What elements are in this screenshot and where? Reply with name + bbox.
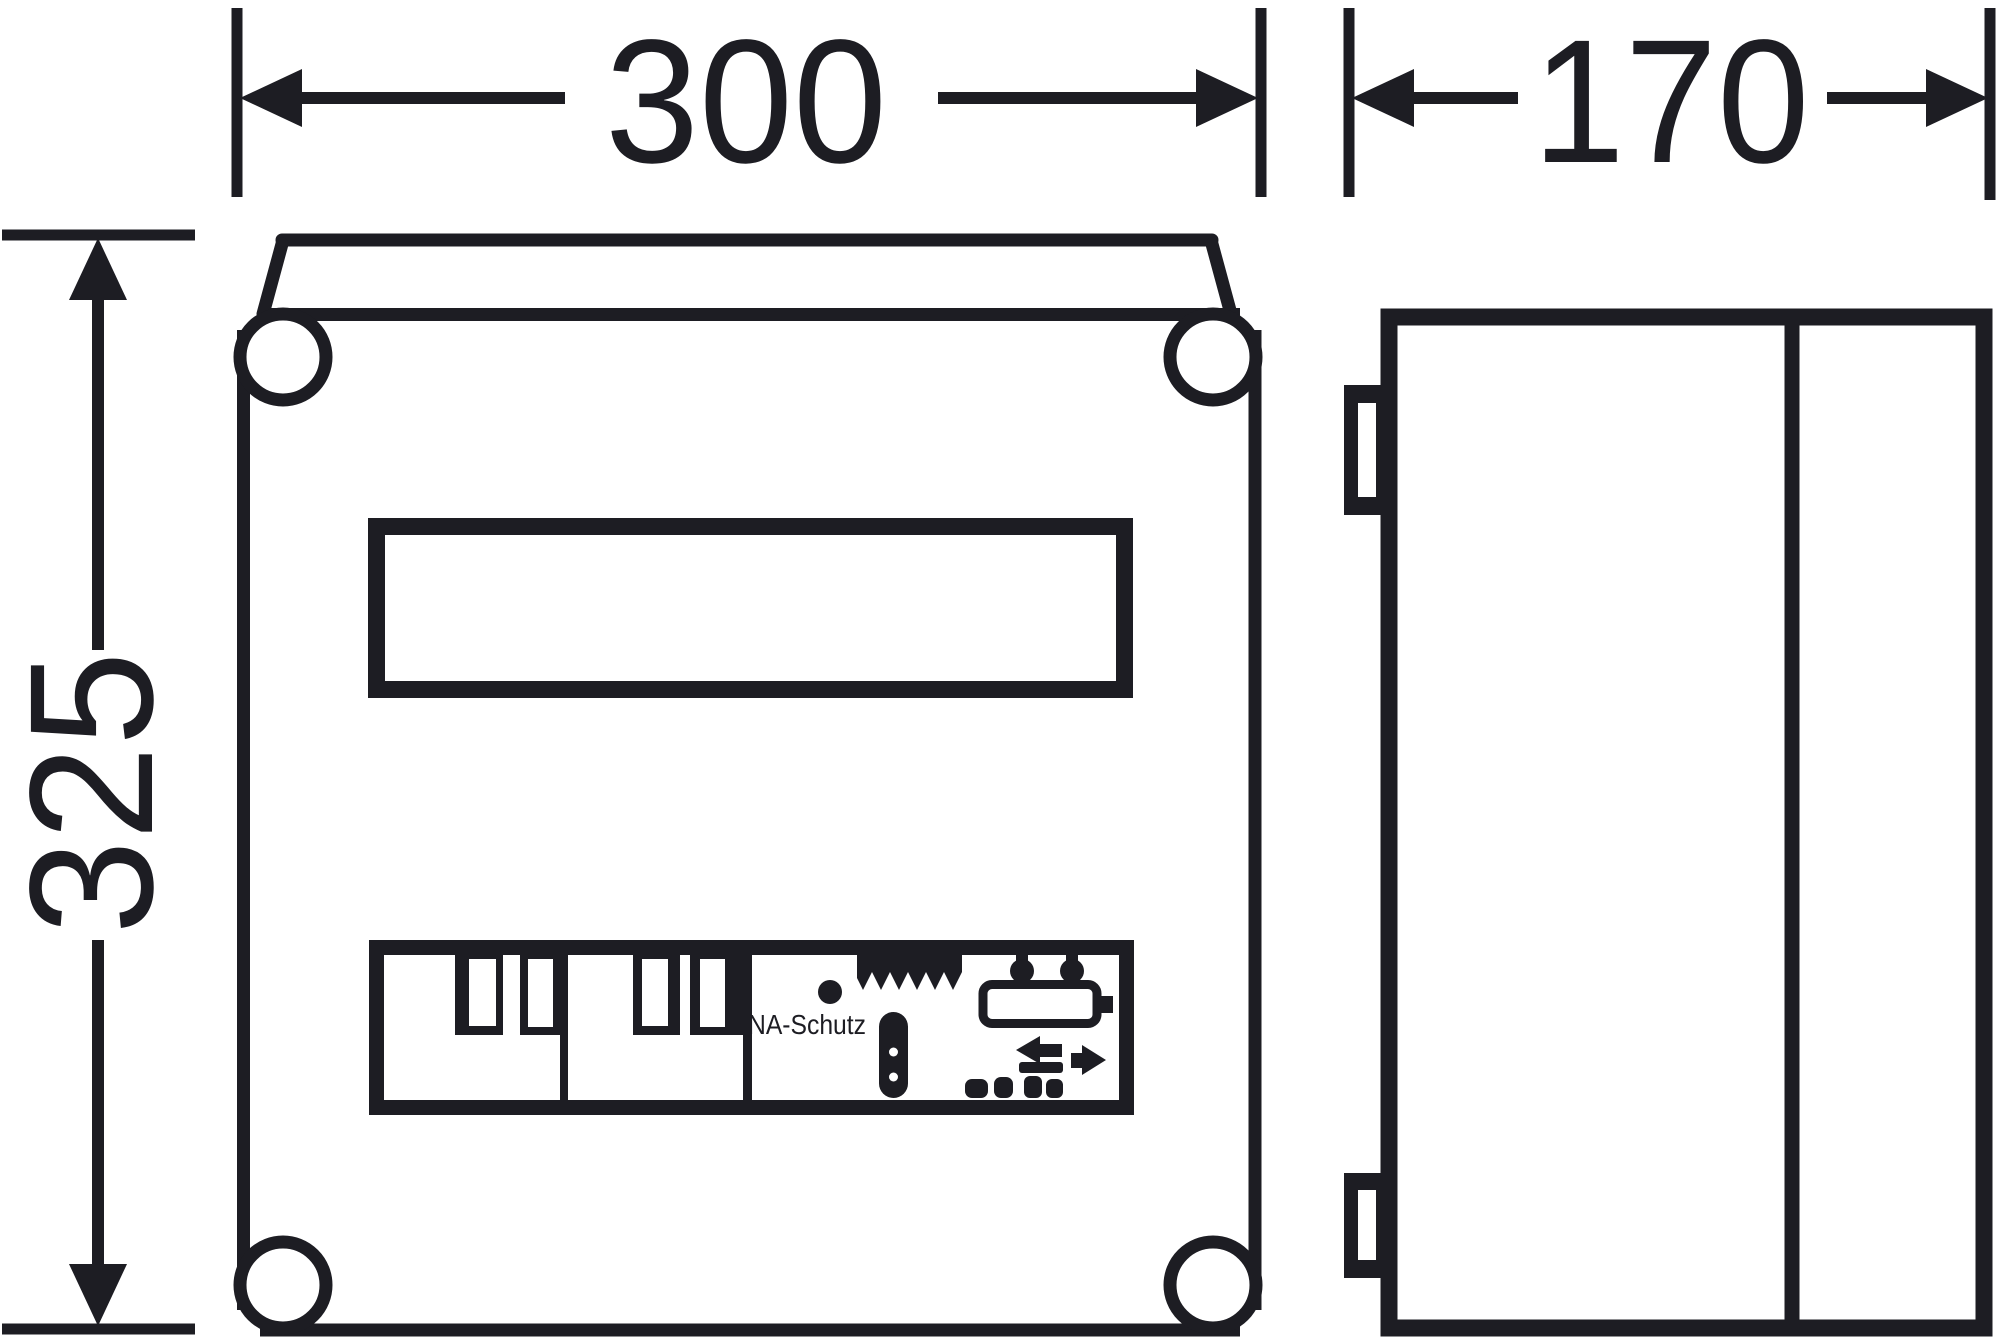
arrowhead-down-icon <box>69 1264 127 1326</box>
device-slot <box>528 959 553 1027</box>
dimension-label-height: 325 <box>0 652 190 935</box>
label-window <box>377 527 1125 690</box>
switch-dot <box>889 1073 898 1082</box>
contact-dot-icon <box>965 1079 988 1098</box>
screw-hole-icon <box>1170 1242 1256 1328</box>
connector-blob <box>1024 1076 1042 1098</box>
dimension-front-width: 300 <box>237 4 1261 200</box>
connector-bar <box>1019 1062 1063 1073</box>
terminal-dome <box>1060 959 1084 983</box>
screw-hole-icon <box>1170 314 1256 400</box>
arrowhead-left-icon <box>240 69 302 127</box>
dimension-front-height: 325 <box>0 235 195 1329</box>
device-slot <box>642 959 668 1026</box>
connector-blob <box>1046 1079 1063 1098</box>
contact-dot-icon <box>994 1077 1013 1098</box>
lid-handle <box>263 240 1231 314</box>
dimension-side-depth: 170 <box>1349 4 1990 200</box>
terminal-dome <box>1010 959 1034 983</box>
relay-module-icon <box>983 985 1097 1024</box>
arrowhead-right-icon <box>1196 69 1258 127</box>
front-view: NA-Schutz <box>240 240 1256 1330</box>
dimension-drawing: 300 170 325 <box>0 0 2000 1338</box>
tab-slot <box>1358 1190 1376 1260</box>
side-body <box>1389 317 1984 1328</box>
side-view <box>1344 317 1984 1328</box>
device-slot <box>469 959 496 1026</box>
tab-slot <box>1358 403 1376 497</box>
screw-hole-icon <box>240 314 326 400</box>
na-schutz-label: NA-Schutz <box>748 1009 866 1040</box>
drawing-svg: 300 170 325 <box>0 0 2000 1338</box>
arrowhead-right-icon <box>1926 69 1988 127</box>
screw-hole-icon <box>240 1242 326 1328</box>
device-slot <box>700 959 725 1027</box>
dimension-label-depth: 170 <box>1533 4 1810 200</box>
enclosure-outline <box>244 315 1256 1331</box>
arrowhead-up-icon <box>69 238 127 300</box>
indicator-dot-icon <box>818 980 842 1004</box>
cover-screws <box>240 314 1256 1328</box>
din-rail-block: NA-Schutz <box>377 942 1127 1108</box>
lid-handle-left-slant <box>263 244 282 314</box>
lid-handle-right-slant <box>1212 244 1231 314</box>
dimension-label-width: 300 <box>605 4 887 200</box>
relay-terminal-nub <box>1098 996 1113 1013</box>
arrowhead-left-icon <box>1352 69 1414 127</box>
switch-dot <box>889 1048 898 1057</box>
